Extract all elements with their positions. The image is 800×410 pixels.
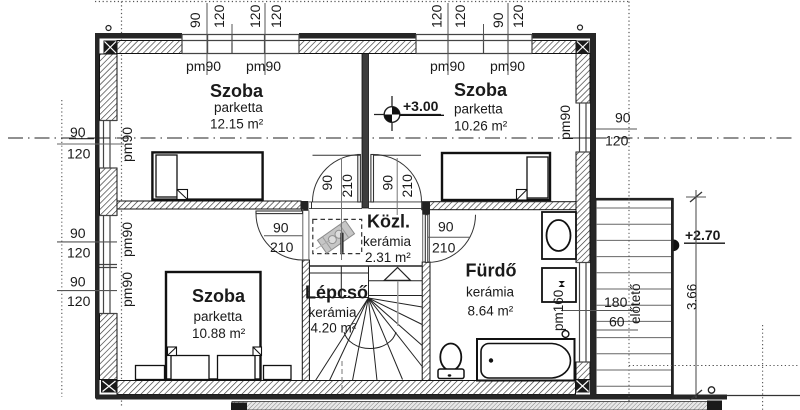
svg-text:parketta: parketta — [454, 102, 503, 117]
svg-text:180: 180 — [604, 294, 628, 310]
svg-text:120: 120 — [67, 146, 91, 162]
svg-text:10.88 m²: 10.88 m² — [192, 326, 246, 341]
svg-text:60: 60 — [609, 314, 625, 330]
svg-text:Szoba: Szoba — [454, 80, 508, 100]
svg-text:120: 120 — [429, 4, 445, 28]
svg-text:8.64 m²: 8.64 m² — [468, 304, 514, 319]
svg-text:4.20 m²: 4.20 m² — [311, 321, 357, 336]
svg-text:120: 120 — [605, 133, 629, 149]
svg-text:pm90: pm90 — [119, 272, 135, 307]
svg-text:Szoba: Szoba — [210, 81, 264, 101]
svg-text:+3.00: +3.00 — [403, 98, 439, 114]
svg-text:90: 90 — [70, 124, 86, 140]
svg-text:90: 90 — [70, 274, 86, 290]
svg-text:120: 120 — [268, 4, 284, 28]
svg-text:12.15 m²: 12.15 m² — [210, 117, 264, 132]
svg-text:pm90: pm90 — [186, 58, 221, 74]
svg-text:Lépcső: Lépcső — [305, 283, 368, 303]
svg-text:210: 210 — [432, 240, 456, 256]
svg-text:120: 120 — [211, 4, 227, 28]
svg-text:210: 210 — [339, 174, 355, 198]
svg-text:parketta: parketta — [194, 309, 243, 324]
svg-text:pm90: pm90 — [557, 105, 573, 140]
svg-text:pm160: pm160 — [551, 290, 566, 331]
svg-text:pm90: pm90 — [430, 58, 465, 74]
svg-text:előtető: előtető — [628, 283, 643, 324]
svg-text:90: 90 — [273, 220, 289, 236]
svg-text:Közl.: Közl. — [367, 212, 410, 232]
svg-text:90: 90 — [187, 12, 203, 28]
svg-text:10.26 m²: 10.26 m² — [454, 119, 508, 134]
svg-text:Fürdő: Fürdő — [466, 261, 517, 281]
svg-text:120: 120 — [510, 4, 526, 28]
svg-text:kerámia: kerámia — [466, 285, 515, 300]
svg-text:90: 90 — [615, 110, 631, 126]
svg-text:90: 90 — [438, 219, 454, 235]
svg-text:210: 210 — [399, 174, 415, 198]
svg-text:kerámia: kerámia — [309, 305, 358, 320]
svg-text:90: 90 — [70, 225, 86, 241]
svg-text:120: 120 — [67, 245, 91, 261]
svg-text:parketta: parketta — [214, 100, 263, 115]
svg-text:pm90: pm90 — [246, 58, 281, 74]
svg-text:pm90: pm90 — [119, 222, 135, 257]
svg-text:210: 210 — [270, 239, 294, 255]
svg-text:2.31 m²: 2.31 m² — [365, 250, 411, 265]
svg-text:90: 90 — [380, 175, 396, 191]
svg-text:3.66: 3.66 — [685, 284, 700, 310]
svg-text:90: 90 — [319, 175, 335, 191]
svg-text:120: 120 — [452, 4, 468, 28]
svg-text:120: 120 — [247, 4, 263, 28]
svg-text:90: 90 — [490, 12, 506, 28]
svg-text:kerámia: kerámia — [363, 234, 412, 249]
svg-text:pm90: pm90 — [490, 58, 525, 74]
svg-text:120: 120 — [67, 293, 91, 309]
svg-text:Szoba: Szoba — [192, 286, 246, 306]
svg-text:+2.70: +2.70 — [685, 227, 721, 243]
